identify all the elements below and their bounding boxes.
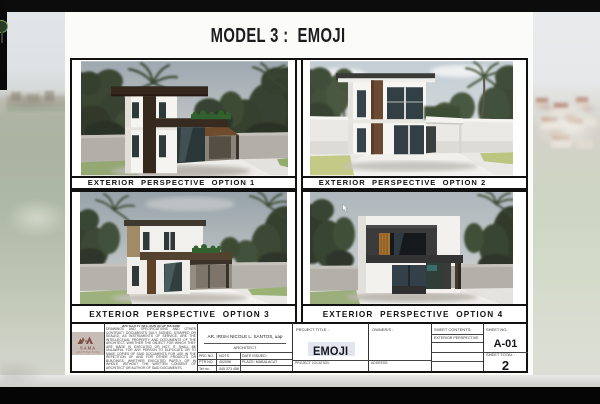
svg-text:ARCHITECTURE: ARCHITECTURE: [76, 351, 100, 354]
svg-text:SAMA: SAMA: [80, 346, 96, 351]
